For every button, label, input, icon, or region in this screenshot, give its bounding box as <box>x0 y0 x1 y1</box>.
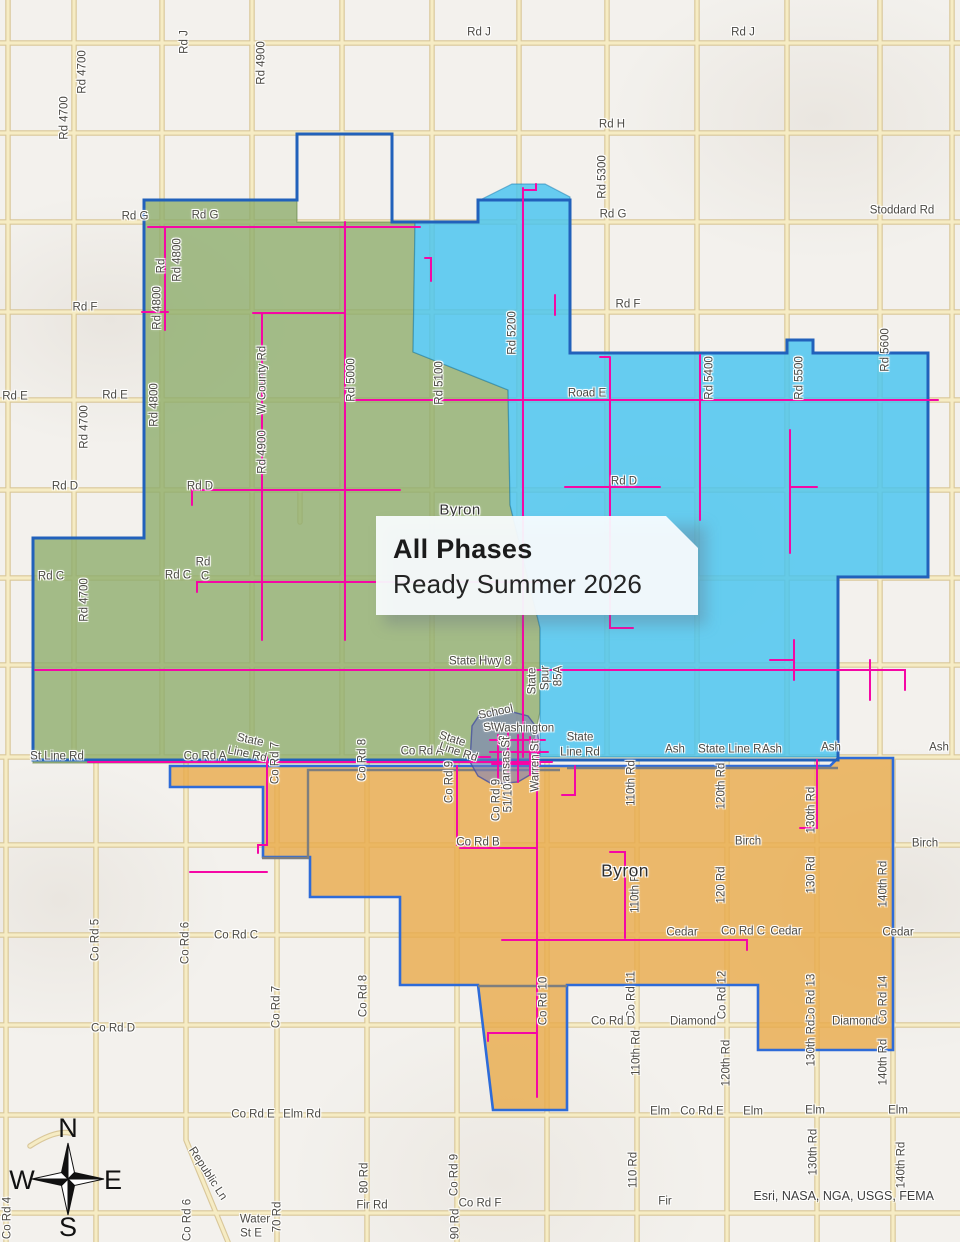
road-label: Line Rd <box>560 747 600 759</box>
road-label: 140th Rd <box>878 861 890 908</box>
road-label: Co Rd 12 <box>717 971 729 1020</box>
road-label: Cedar <box>770 926 801 938</box>
road-label: 110th Rd <box>631 1030 643 1076</box>
road-label: Rd E <box>2 391 28 403</box>
road-label: State <box>527 668 539 695</box>
road-label: 130th Rd <box>806 1020 818 1067</box>
road-label: Rd 4700 <box>59 96 71 139</box>
road-label: Spur <box>540 666 552 690</box>
road-label: 90 Rd <box>450 1209 462 1240</box>
road-label: Rd 5300 <box>597 155 609 198</box>
road-label: Ash <box>762 744 782 756</box>
road-label: Rd 5400 <box>704 356 716 399</box>
road-label: Co Rd D <box>91 1023 135 1035</box>
road-label: Elm Rd <box>283 1109 321 1121</box>
road-label: Rd F <box>616 299 641 311</box>
road-label: Rd 4700 <box>77 50 89 93</box>
road-label: 51/10 <box>503 784 515 813</box>
road-label: Rd D <box>187 481 213 493</box>
road-label: Birch <box>912 838 938 850</box>
road-label: Co Rd 7 <box>271 986 283 1028</box>
road-label: Diamond <box>670 1016 716 1028</box>
road-label: Rd F <box>73 302 98 314</box>
compass-n-label: N <box>58 1117 78 1143</box>
road-label: Rd 4900 <box>257 430 269 473</box>
road-label: 120th Rd <box>721 1040 733 1087</box>
road-label: Rd J <box>731 27 755 39</box>
road-label: 130th Rd <box>808 1129 820 1176</box>
road-label: Elm <box>743 1106 763 1118</box>
road-label: Elm <box>805 1105 825 1117</box>
road-label: Water <box>240 1214 270 1226</box>
place-label: Byron <box>601 862 649 880</box>
road-label: Rd 4900 <box>256 41 268 84</box>
place-label: Byron <box>439 503 480 518</box>
road-label: Co Rd D <box>591 1016 635 1028</box>
road-label: Co Rd B <box>456 837 499 849</box>
road-label: Ash <box>821 742 841 754</box>
road-label: Co Rd 8 <box>358 975 370 1017</box>
road-label: Rd D <box>611 476 637 488</box>
road-label: Rd <box>196 557 211 569</box>
road-label: Ash <box>929 742 949 754</box>
road-label: Rd 4700 <box>79 578 91 621</box>
road-label: W County Rd <box>257 346 269 414</box>
road-label: Rd D <box>52 481 78 493</box>
compass-e-label: E <box>104 1165 122 1195</box>
road-label: Stoddard Rd <box>870 205 935 217</box>
road-label: Rd 5200 <box>507 311 519 354</box>
road-label: 80 Rd <box>359 1163 371 1194</box>
compass-w-label: W <box>9 1165 35 1195</box>
road-label: Co Rd 5 <box>90 919 102 961</box>
road-label: Washington <box>494 723 554 735</box>
road-label: Elm <box>888 1105 908 1117</box>
road-label: Co Rd C <box>721 926 765 938</box>
road-label: Co Rd C <box>214 930 258 942</box>
road-label: Kansas St <box>501 737 513 789</box>
compass-s-label: S <box>59 1212 77 1241</box>
road-label: Rd C <box>38 571 64 583</box>
road-label: 85A <box>553 666 565 686</box>
road-label: Rd E <box>102 390 128 402</box>
road-label: Road E <box>568 388 606 400</box>
road-label: Warren St <box>530 740 542 791</box>
road-label: Rd H <box>599 119 625 131</box>
road-label: Cedar <box>882 927 913 939</box>
road-label: Co Rd 13 <box>806 974 818 1023</box>
road-label: Fir <box>658 1196 671 1208</box>
road-label: Cedar <box>666 927 697 939</box>
road-label: Fir Rd <box>356 1200 387 1212</box>
road-label: Co Rd E <box>680 1106 723 1118</box>
road-label: 140th Rd <box>896 1142 908 1189</box>
map-viewport[interactable]: Rd JRd JRd JRd 4700Rd 4700Rd 4900Rd HRd … <box>0 0 960 1242</box>
road-label: Rd 5500 <box>794 356 806 399</box>
road-label: State <box>567 732 594 744</box>
road-label: C <box>201 571 209 583</box>
road-label: Co Rd 10 <box>538 977 550 1026</box>
road-label: Rd G <box>192 210 219 222</box>
road-label: Co Rd 6 <box>182 1199 194 1241</box>
road-label: Co Rd 7 <box>270 742 282 784</box>
road-label: Elm <box>650 1106 670 1118</box>
road-label: Co Rd F <box>459 1198 502 1210</box>
road-label: Co Rd A <box>184 751 227 763</box>
road-label: State Hwy 8 <box>449 656 511 668</box>
road-label: Rd C <box>165 570 191 582</box>
title-box: All Phases Ready Summer 2026 <box>376 516 698 615</box>
compass-rose-icon: N E S W <box>6 1117 130 1241</box>
road-label: 70 Rd <box>272 1202 284 1233</box>
road-label: 120 Rd <box>716 866 728 903</box>
title-phase: All Phases <box>393 534 698 565</box>
road-label: Co Rd 9 <box>491 779 503 821</box>
map-attribution: Esri, NASA, NGA, USGS, FEMA <box>753 1189 934 1203</box>
road-label: Rd <box>156 259 168 274</box>
road-label: Co Rd 6 <box>180 922 192 964</box>
road-label: Rd 5000 <box>346 358 358 401</box>
road-label: 130 Rd <box>806 856 818 893</box>
road-label: 140th Rd <box>878 1039 890 1086</box>
road-label: Rd 4700 <box>79 405 91 448</box>
road-label: State Line Rd <box>698 744 768 756</box>
road-label: Birch <box>735 836 761 848</box>
road-label: 110 Rd <box>628 1152 640 1188</box>
road-label: 130th Rd <box>806 787 818 834</box>
road-label: St Line Rd <box>30 751 84 763</box>
road-label: Co Rd 8 <box>357 739 369 781</box>
road-label: Rd 5100 <box>434 361 446 404</box>
road-label: Rd J <box>467 27 491 39</box>
road-label: Ash <box>665 744 685 756</box>
road-label: Co Rd 14 <box>878 976 890 1025</box>
road-label: Rd J <box>179 30 191 54</box>
road-label: Co Rd 11 <box>626 971 638 1019</box>
road-label: Co Rd 9 <box>444 761 456 803</box>
road-label: Rd 4800 <box>152 286 164 329</box>
road-label: Rd 5600 <box>880 328 892 371</box>
road-label: Rd G <box>600 209 627 221</box>
road-label: Co Rd E <box>231 1109 274 1121</box>
road-label: 120th Rd <box>716 763 728 810</box>
road-label: Diamond <box>832 1016 878 1028</box>
road-label: Rd 4800 <box>172 238 184 281</box>
road-label: Co Rd 9 <box>449 1154 461 1196</box>
title-ready-date: Ready Summer 2026 <box>393 569 698 600</box>
road-label: Rd 4800 <box>149 383 161 426</box>
road-label: Rd G <box>122 211 149 223</box>
road-label: St E <box>240 1228 262 1240</box>
road-label: 110th Rd <box>626 760 638 806</box>
